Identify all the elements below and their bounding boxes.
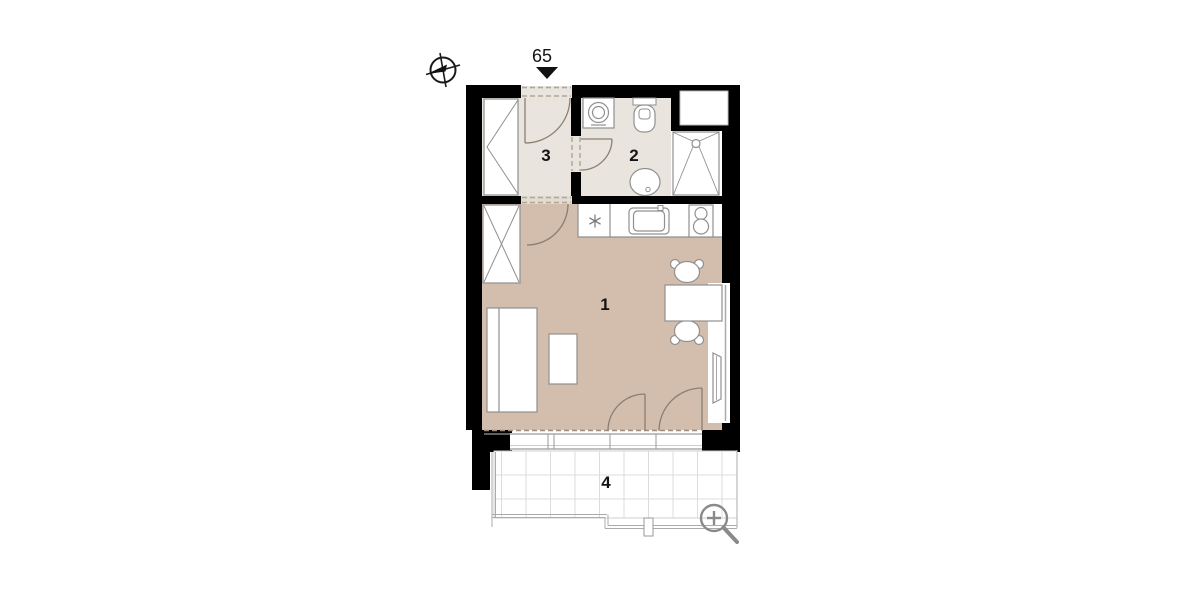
shower-symbol: [673, 132, 719, 195]
floor-plan-canvas: 65 1 2 3 4: [0, 0, 1200, 600]
room-label-living: 1: [593, 295, 617, 315]
washing-machine-symbol: [583, 98, 614, 128]
magnifier-glyph: [695, 499, 745, 549]
balcony-post: [644, 518, 653, 536]
wall-top-left: [466, 85, 521, 98]
wall-bath-bottom: [572, 196, 740, 204]
washbasin-symbol: [630, 169, 660, 196]
wall-hall-bottom: [466, 196, 521, 204]
room-label-balcony: 4: [594, 473, 618, 493]
radiator-symbol: [713, 353, 721, 403]
wall-left: [466, 98, 482, 430]
room-label-hall: 3: [534, 146, 558, 166]
entrance-number-label: 65: [520, 46, 564, 67]
table-symbol: [665, 285, 722, 321]
chair-symbol: [675, 262, 700, 283]
wardrobe-symbol-living: [483, 205, 520, 283]
wall-bottom-right-pier: [702, 430, 740, 452]
kitchen-counter: [578, 204, 722, 237]
wardrobe-symbol-hall: [484, 99, 518, 195]
north-arrow-icon: [426, 53, 460, 87]
nightstand-symbol: [549, 334, 577, 384]
room-label-bathroom: 2: [622, 146, 646, 166]
shaft-niche: [680, 91, 728, 125]
bed-symbol: [487, 308, 537, 412]
entrance-marker-triangle-icon: [536, 67, 558, 79]
wall-hall-bath-top: [571, 98, 581, 136]
sill-strip: [510, 433, 702, 450]
kitchen-sink-symbol: [629, 206, 669, 235]
toilet-symbol: [633, 98, 656, 132]
zoom-icon[interactable]: [695, 499, 745, 549]
chair-symbol: [675, 321, 700, 342]
cooktop-symbol: [689, 205, 713, 237]
wall-bottom-left-pier: [472, 430, 490, 490]
wall-hall-bath-bottom: [571, 172, 581, 196]
balcony-door-sill: [484, 433, 702, 450]
